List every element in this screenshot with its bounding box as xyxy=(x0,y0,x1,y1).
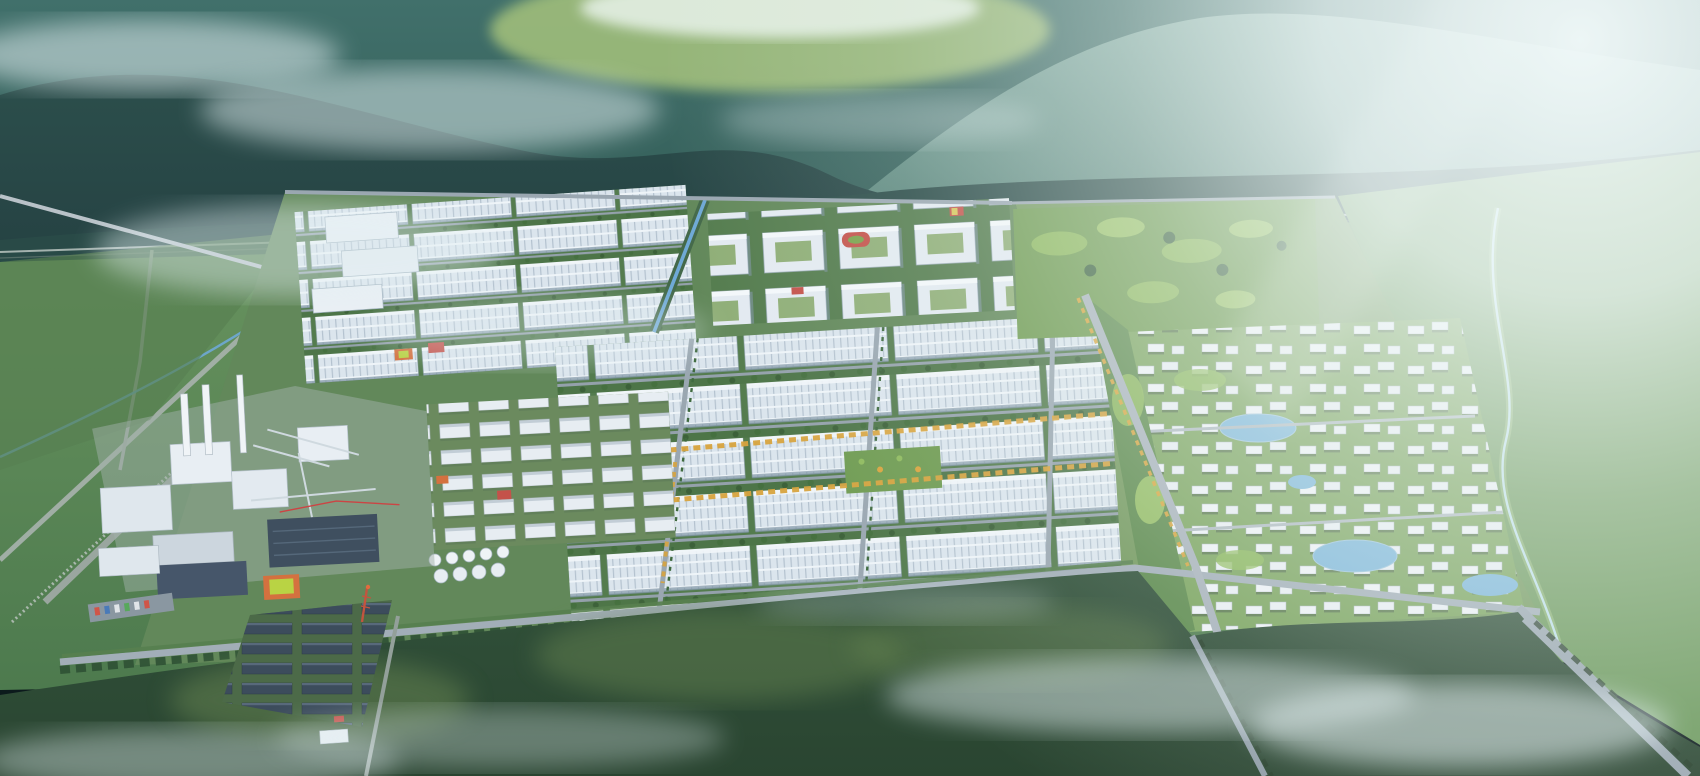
aerial-industrial-park-rendering xyxy=(0,0,1700,776)
rendering-canvas xyxy=(0,0,1700,776)
sun-glare xyxy=(0,0,1700,776)
